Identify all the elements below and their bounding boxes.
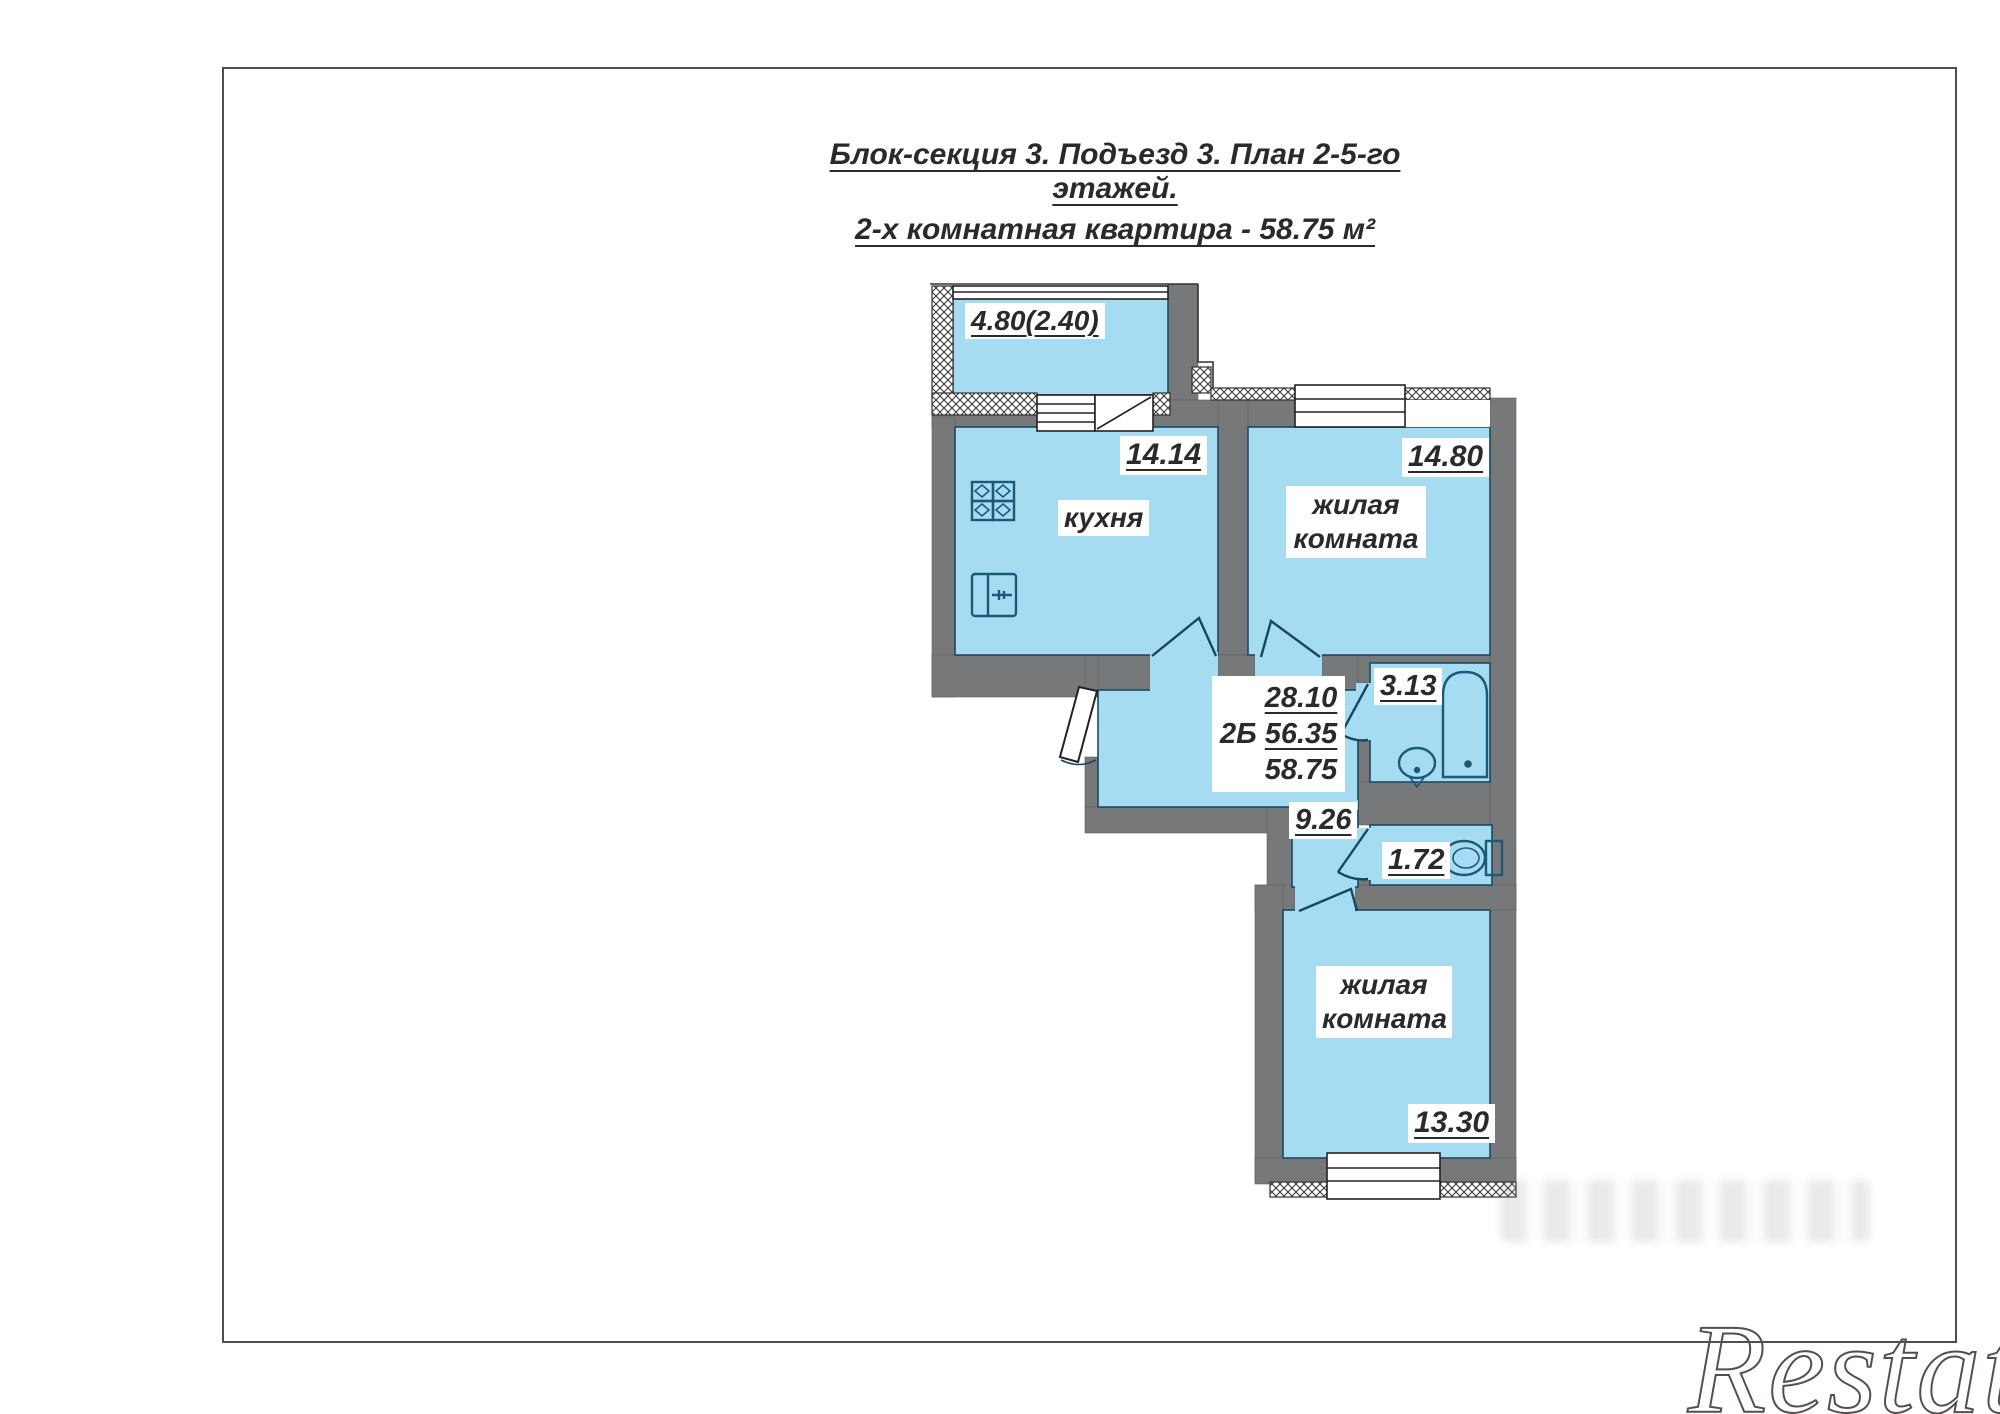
entrance-door: [1060, 687, 1097, 765]
apartment-summary-label: 28.10 2Б 56.35 58.75: [1212, 676, 1345, 792]
living-room-2-window: [1327, 1153, 1440, 1199]
faint-watermark: [1500, 1180, 1870, 1242]
living-2-area-label: 13.30: [1408, 1104, 1495, 1143]
balcony-window: [1037, 395, 1095, 431]
window-sill-strip: [1405, 400, 1490, 427]
hall-area-main: 56.35: [1265, 718, 1338, 750]
living-2-name-label: жилая комната: [1316, 966, 1452, 1038]
balcony-door: [1095, 395, 1153, 431]
living-1-area-label: 14.80: [1402, 438, 1489, 477]
hall-2-area-label: 9.26: [1289, 802, 1357, 839]
living-room-1-window: [1295, 385, 1405, 427]
hall-area-total: 58.75: [1265, 754, 1338, 786]
restate-watermark: Restate: [1688, 1296, 2000, 1414]
hall-area-living: 28.10: [1265, 682, 1338, 714]
balcony-area-label: 4.80(2.40): [965, 303, 1105, 339]
balcony-glazing: [953, 286, 1168, 299]
wc-area-label: 1.72: [1382, 842, 1450, 879]
kitchen-name-label: кухня: [1058, 500, 1149, 536]
kitchen-area-label: 14.14: [1120, 436, 1207, 475]
living-1-name-label: жилая комната: [1286, 486, 1426, 558]
bath-area-label: 3.13: [1374, 668, 1442, 705]
floor-plan-page: Блок-секция 3. Подъезд 3. План 2-5-го эт…: [0, 0, 2000, 1414]
apartment-type: 2Б: [1220, 718, 1257, 750]
